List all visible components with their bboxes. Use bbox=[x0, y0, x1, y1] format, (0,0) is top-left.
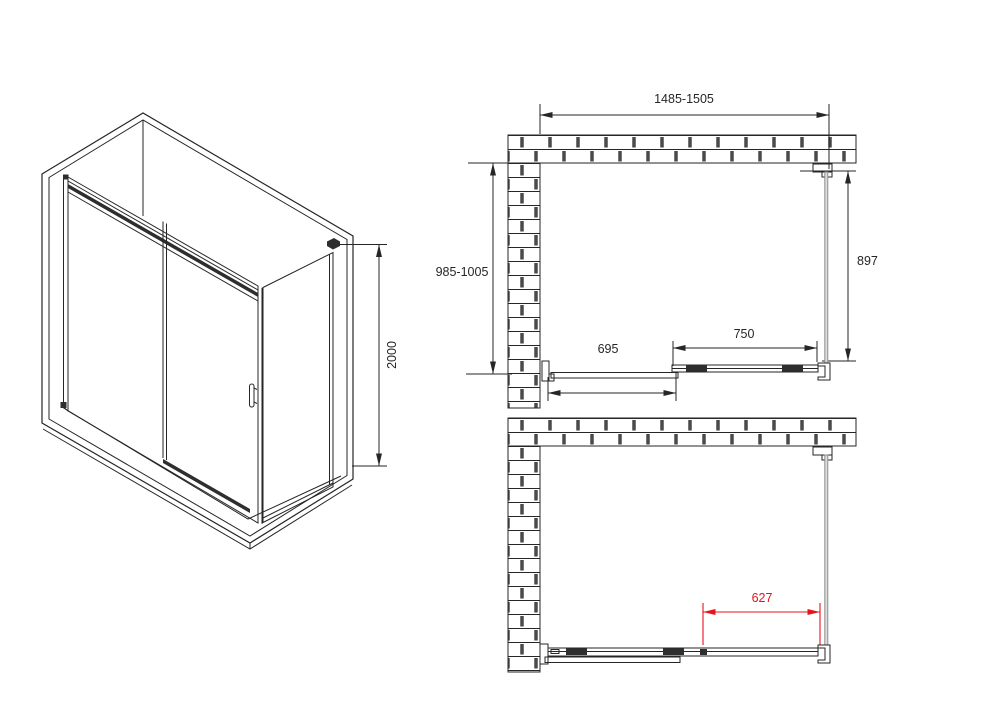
roller-carriage bbox=[782, 365, 803, 372]
iso-door bbox=[61, 175, 263, 524]
drawing-page: 2000 1485-1505 985-1005 897 bbox=[0, 0, 1000, 707]
wall-bracket bbox=[327, 238, 340, 250]
dim-label-door: 695 bbox=[598, 342, 619, 356]
sliding-door-plan bbox=[545, 657, 680, 663]
technical-drawing: 2000 1485-1505 985-1005 897 bbox=[0, 0, 1000, 707]
dim-side-panel: 897 bbox=[800, 171, 878, 361]
track-end-cap bbox=[63, 175, 69, 180]
door-stopper bbox=[700, 649, 707, 655]
iso-side-panel bbox=[263, 238, 340, 523]
dim-label-side-panel: 897 bbox=[857, 254, 878, 268]
iso-frame bbox=[42, 113, 353, 549]
roller-carriage bbox=[663, 649, 684, 656]
dim-fixed-panel: 750 bbox=[673, 327, 817, 366]
iso-view: 2000 bbox=[42, 113, 399, 549]
dim-label-width: 1485-1505 bbox=[654, 92, 714, 106]
bottom-rail bbox=[163, 459, 250, 513]
door-handle bbox=[250, 384, 258, 407]
tray-inner-edge bbox=[62, 407, 341, 519]
wall-profile bbox=[540, 644, 548, 664]
side-panel-glass-plan bbox=[825, 172, 828, 363]
roller-carriage bbox=[566, 649, 587, 656]
dim-label-depth: 985-1005 bbox=[436, 265, 489, 279]
roller-carriage bbox=[686, 365, 707, 372]
dim-label-height: 2000 bbox=[385, 341, 399, 369]
dim-depth: 985-1005 bbox=[436, 163, 512, 374]
dim-label-passage: 627 bbox=[752, 591, 773, 605]
wall-top bbox=[508, 418, 856, 446]
wall-left bbox=[508, 163, 540, 408]
plan-view-closed: 1485-1505 985-1005 897 750 6 bbox=[436, 92, 878, 408]
dim-passage: 627 bbox=[703, 591, 820, 645]
dim-label-fixed-panel: 750 bbox=[734, 327, 755, 341]
bottom-guide-block bbox=[61, 402, 67, 408]
sliding-door-plan bbox=[551, 373, 678, 379]
wall-top bbox=[508, 135, 856, 163]
corner-bracket bbox=[818, 645, 830, 663]
wall-bracket-top bbox=[813, 447, 832, 455]
side-panel-glass bbox=[263, 253, 333, 523]
plan-view-open: 627 bbox=[508, 418, 856, 672]
enclosure-open bbox=[540, 447, 832, 664]
corner-bracket bbox=[818, 363, 830, 380]
wall-left bbox=[508, 446, 540, 672]
side-panel-glass-plan bbox=[825, 455, 828, 645]
dim-door: 695 bbox=[548, 342, 676, 401]
